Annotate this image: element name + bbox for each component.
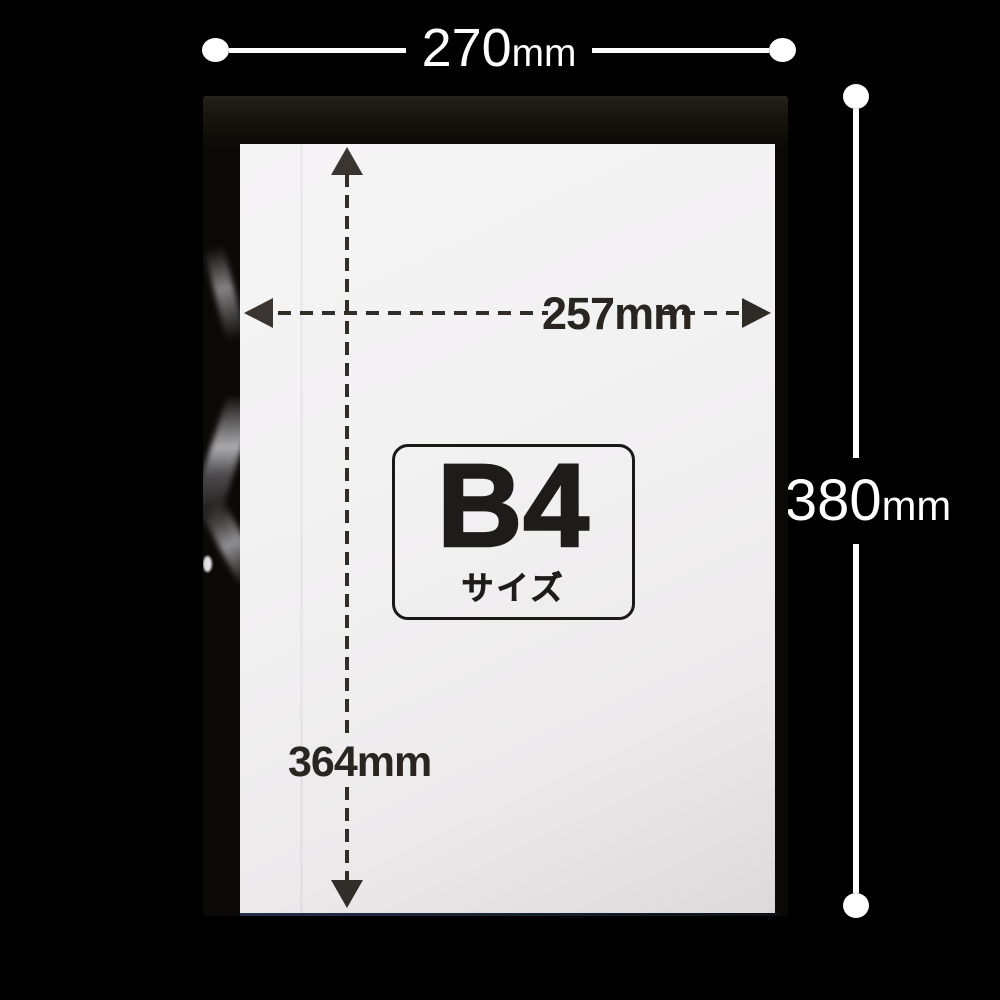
dimension-line-segment (592, 48, 769, 53)
dimension-line-segment (853, 109, 859, 458)
arrow-down-icon (331, 880, 363, 908)
outer-height-dimension: 380mm (786, 84, 926, 918)
outer-height-value: 380 (785, 468, 882, 533)
dimension-endpoint-dot-icon (843, 893, 869, 918)
inner-height-label: 364mm (288, 741, 431, 784)
outer-height-unit: mm (882, 482, 952, 529)
inner-height-dashed-line (345, 787, 349, 880)
paper-crease (300, 144, 303, 913)
size-label-box: B4 サイズ (392, 444, 635, 620)
dimension-line-segment (853, 544, 859, 893)
size-label-caption: サイズ (461, 563, 565, 609)
outer-width-dimension: 270mm (202, 24, 796, 76)
arrow-left-icon (244, 298, 273, 328)
product-dimension-diagram: 270mm 380mm 257mm (0, 0, 1000, 1000)
arrow-up-icon (331, 147, 363, 175)
bag-bottom-edge (240, 913, 781, 916)
film-glint (203, 556, 212, 572)
inner-width-dashed-line (278, 311, 548, 315)
bag-top-film (203, 96, 788, 145)
outer-width-unit: mm (512, 32, 577, 75)
outer-height-label: 380mm (785, 472, 951, 530)
outer-width-value: 270 (422, 18, 512, 78)
dimension-endpoint-dot-icon (202, 38, 229, 62)
outer-width-label: 270mm (422, 21, 577, 75)
product-bag: 257mm 364mm B4 サイズ (203, 96, 788, 916)
inner-width-label: 257mm (542, 291, 692, 336)
dimension-line-segment (229, 48, 406, 53)
arrow-right-icon (742, 298, 771, 328)
dimension-endpoint-dot-icon (769, 38, 796, 62)
inner-height-dashed-line (345, 174, 349, 737)
dimension-endpoint-dot-icon (843, 84, 869, 109)
size-label-main: B4 (437, 455, 590, 559)
paper-insert: 257mm 364mm B4 サイズ (240, 144, 775, 913)
